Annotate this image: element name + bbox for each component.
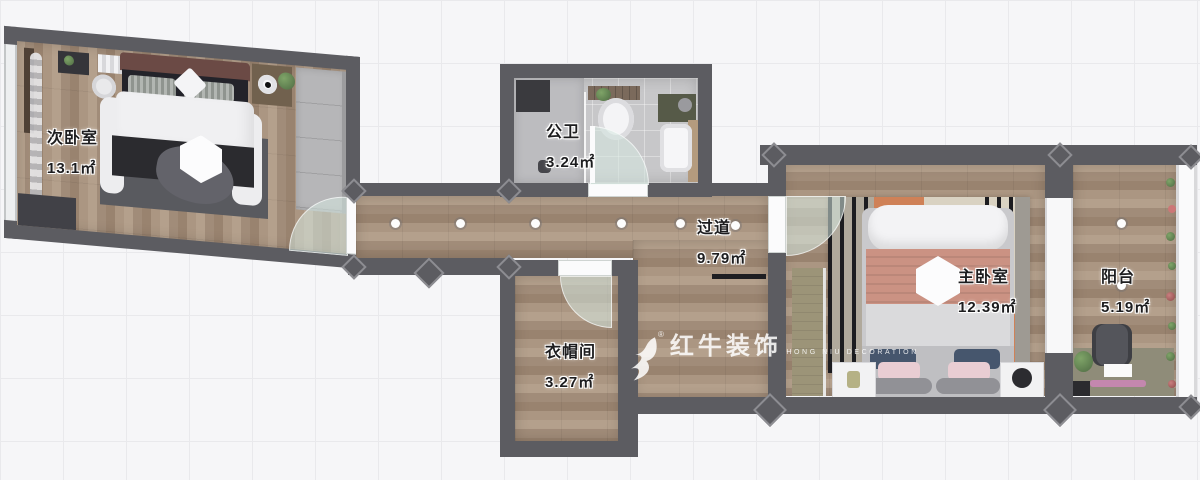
ceiling-light: [391, 219, 400, 228]
room-area: 3.24㎡: [546, 151, 595, 172]
room-area: 9.79㎡: [697, 247, 746, 268]
doorway-cloakroom: [558, 260, 612, 276]
window-plant: [1166, 352, 1175, 361]
room-bathroom: [500, 64, 712, 197]
ceiling-light: [531, 219, 540, 228]
room-name: 次卧室: [47, 124, 98, 148]
balcony-storage-box: [1072, 381, 1090, 396]
master-bed-duvet-roll: [868, 205, 1008, 251]
room-name: 衣帽间: [545, 338, 596, 362]
nightstand-decor-right: [1012, 368, 1032, 388]
ceiling-light: [676, 219, 685, 228]
divider-window: [1045, 198, 1073, 353]
bathroom-wall-left: [500, 64, 514, 197]
window-plant: [1168, 380, 1176, 388]
master-wall-bottom: [633, 397, 1197, 414]
window-wall-left: [4, 26, 17, 239]
left-nightstand: [98, 54, 122, 74]
bathroom-wall-bottom-right: [648, 183, 712, 197]
window-plant: [1166, 178, 1175, 187]
room-name: 公卫: [546, 118, 595, 142]
sink-basin: [660, 124, 692, 172]
room-area: 5.19㎡: [1101, 296, 1150, 317]
bathroom-wall-right: [698, 64, 712, 197]
ceiling-light: [456, 219, 465, 228]
divider-wall-upper: [1045, 165, 1073, 198]
desk-paper: [1104, 364, 1132, 377]
bolster-right: [936, 378, 1000, 394]
shower-tray: [516, 80, 550, 112]
label-master-bedroom: 主卧室 12.39㎡: [958, 263, 1017, 317]
divider-wall-lower: [1045, 353, 1073, 397]
bull-logo-icon: [626, 334, 660, 393]
room-area: 12.39㎡: [958, 296, 1017, 317]
room-name: 阳台: [1101, 263, 1150, 287]
master-wall-top: [760, 145, 1197, 165]
mat-basin: [678, 98, 692, 112]
label-hallway: 过道 9.79㎡: [697, 214, 746, 268]
balcony-light: [1117, 219, 1126, 228]
bathroom-wall-top: [500, 64, 712, 78]
window-plant: [1168, 262, 1176, 270]
window-plant: [1168, 205, 1176, 213]
registered-mark: ®: [658, 330, 664, 339]
room-name: 过道: [697, 214, 746, 238]
hallway-wall-top-left: [348, 183, 515, 196]
watermark: ® 红牛装饰 HONG NIU DECORATION: [626, 334, 919, 393]
cloakroom-wall-top-right: [610, 260, 638, 276]
label-cloakroom: 衣帽间 3.27㎡: [545, 338, 596, 392]
room-area: 3.27㎡: [545, 371, 596, 392]
room-area: 13.1㎡: [47, 157, 98, 178]
watermark-subtitle: HONG NIU DECORATION: [786, 349, 919, 356]
floor-plan-canvas: 次卧室 13.1㎡ 公卫 3.24㎡ 过道 9.79㎡ 衣帽间 3.27㎡ 主卧…: [0, 0, 1200, 480]
window-plant: [1166, 232, 1175, 241]
secondary-bedroom-wall-right: [346, 56, 360, 198]
label-secondary-bedroom: 次卧室 13.1㎡: [47, 124, 98, 178]
window-plant: [1166, 292, 1175, 301]
room-name: 主卧室: [958, 263, 1017, 287]
wall-corner: [4, 26, 17, 45]
label-bathroom: 公卫 3.24㎡: [546, 118, 595, 172]
balcony-plant: [1074, 351, 1093, 372]
rug-gray-column: [1015, 197, 1030, 373]
cloakroom-wall-bottom: [500, 441, 638, 457]
master-wall-left-upper: [768, 165, 786, 196]
office-chair: [1092, 324, 1132, 366]
window-plant: [1168, 322, 1176, 330]
corner-plant: [278, 72, 295, 90]
label-balcony: 阳台 5.19㎡: [1101, 263, 1150, 317]
balcony-window-right: [1176, 165, 1197, 397]
desk-pink-tray: [1090, 380, 1146, 387]
desk-plant: [64, 55, 74, 66]
doorway-bathroom: [588, 183, 648, 197]
watermark-brand: 红牛装饰: [670, 333, 782, 360]
doorway-master-bedroom: [768, 196, 786, 253]
cloakroom-wall-left: [500, 260, 515, 457]
ceiling-light: [617, 219, 626, 228]
nightstand-lamp-dot: [265, 82, 271, 89]
threshold-bar: [712, 274, 766, 279]
tv-cabinet: [18, 193, 76, 230]
wardrobe: [296, 67, 346, 213]
